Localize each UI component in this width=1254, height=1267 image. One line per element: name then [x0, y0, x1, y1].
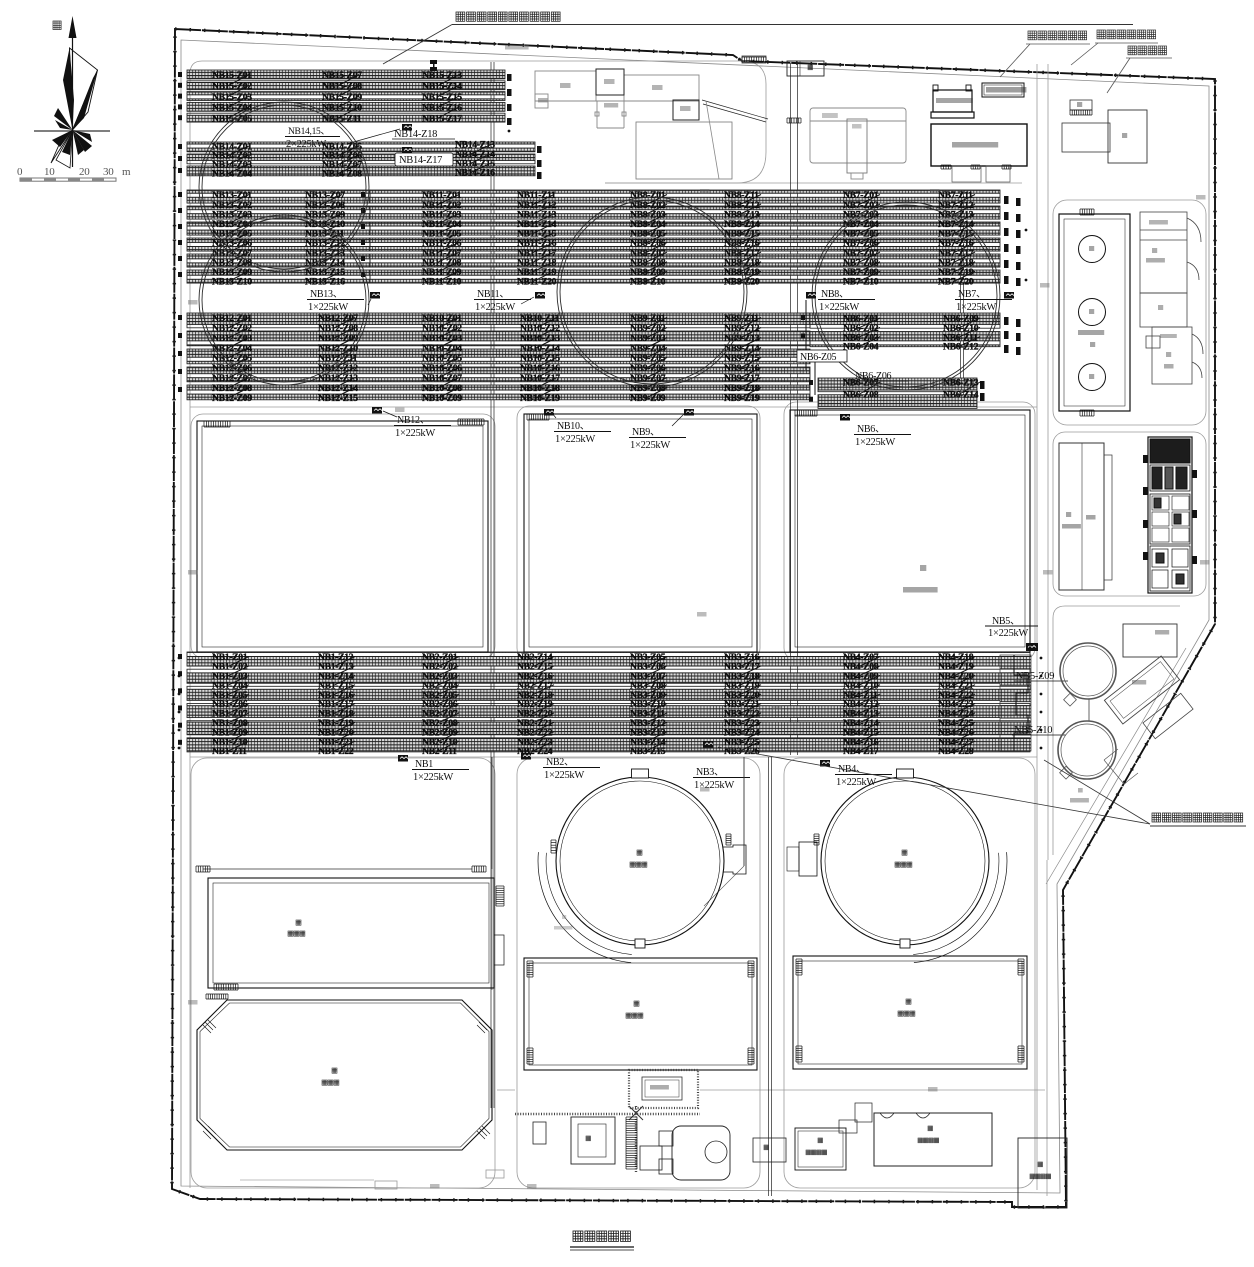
svg-text:1×225kW: 1×225kW: [475, 302, 515, 313]
svg-text:NB15-Z11: NB15-Z11: [322, 113, 362, 124]
svg-text:NB6、: NB6、: [857, 424, 885, 435]
svg-text:NB11-Z20: NB11-Z20: [517, 277, 557, 288]
svg-text:NB8、: NB8、: [821, 289, 849, 300]
svg-text:NB14-Z08: NB14-Z08: [322, 169, 362, 180]
svg-text:1×225kW: 1×225kW: [855, 437, 895, 448]
svg-text:NB6-Z05: NB6-Z05: [800, 352, 837, 363]
svg-text:1×225kW: 1×225kW: [555, 434, 595, 445]
svg-text:1×225kW: 1×225kW: [630, 440, 670, 451]
svg-text:NB1-Z11: NB1-Z11: [212, 746, 247, 757]
svg-text:NB9-Z19: NB9-Z19: [724, 393, 760, 404]
svg-text:NB5-Z10: NB5-Z10: [1014, 725, 1052, 736]
svg-text:NB11、: NB11、: [477, 289, 509, 300]
svg-text:NB12-Z15: NB12-Z15: [318, 393, 358, 404]
svg-text:m: m: [122, 166, 131, 178]
svg-text:NB6-Z04: NB6-Z04: [843, 342, 879, 353]
svg-text:NB7-Z10: NB7-Z10: [843, 277, 879, 288]
svg-text:NB9、: NB9、: [632, 427, 660, 438]
svg-text:NB14,15、: NB14,15、: [288, 127, 330, 137]
svg-text:NB12-Z09: NB12-Z09: [212, 393, 252, 404]
svg-text:NB2、: NB2、: [546, 757, 574, 768]
svg-text:NB6-Z08: NB6-Z08: [843, 390, 879, 401]
svg-text:10: 10: [44, 166, 55, 178]
svg-text:NB3-Z26: NB3-Z26: [724, 746, 760, 757]
svg-text:NB9-Z09: NB9-Z09: [630, 393, 666, 404]
svg-text:0: 0: [17, 166, 23, 178]
svg-text:NB3、: NB3、: [696, 767, 724, 778]
svg-text:NB14-Z18: NB14-Z18: [394, 129, 437, 140]
svg-text:NB14-Z17: NB14-Z17: [399, 155, 442, 166]
svg-text:NB10、: NB10、: [557, 421, 589, 432]
svg-text:NB13-Z16: NB13-Z16: [305, 277, 345, 288]
svg-text:NB1: NB1: [415, 759, 433, 770]
svg-text:NB7-Z20: NB7-Z20: [938, 277, 974, 288]
svg-text:NB15-Z05: NB15-Z05: [212, 113, 252, 124]
svg-text:NB6-Z14: NB6-Z14: [943, 390, 979, 401]
svg-text:NB14-Z16: NB14-Z16: [455, 168, 495, 179]
svg-text:NB5-Z09: NB5-Z09: [1016, 671, 1054, 682]
svg-text:1×225kW: 1×225kW: [956, 302, 996, 313]
svg-text:1×225kW: 1×225kW: [413, 772, 453, 783]
svg-text:1×225kW: 1×225kW: [836, 777, 876, 788]
svg-text:30: 30: [103, 166, 114, 178]
svg-text:NB15-Z17: NB15-Z17: [422, 113, 462, 124]
svg-text:20: 20: [79, 166, 90, 178]
svg-text:NB4-Z17: NB4-Z17: [843, 746, 879, 757]
svg-text:NB11-Z10: NB11-Z10: [422, 277, 462, 288]
svg-text:NB8-Z10: NB8-Z10: [630, 277, 666, 288]
svg-text:NB5、: NB5、: [992, 616, 1020, 627]
svg-text:NB7、: NB7、: [958, 289, 986, 300]
svg-text:NB13-Z10: NB13-Z10: [212, 277, 252, 288]
svg-text:NB6-Z06: NB6-Z06: [855, 371, 892, 382]
svg-text:NB10-Z09: NB10-Z09: [422, 393, 462, 404]
svg-text:NB2-Z11: NB2-Z11: [422, 746, 457, 757]
svg-text:NB4-Z28: NB4-Z28: [938, 746, 974, 757]
svg-text:NB6-Z12: NB6-Z12: [943, 342, 979, 353]
svg-text:NB3-Z15: NB3-Z15: [630, 746, 666, 757]
svg-text:1×225kW: 1×225kW: [395, 428, 435, 439]
svg-text:NB10-Z19: NB10-Z19: [520, 393, 560, 404]
svg-text:1×225kW: 1×225kW: [308, 302, 348, 313]
svg-text:1×225kW: 1×225kW: [819, 302, 859, 313]
svg-text:NB14-Z04: NB14-Z04: [212, 169, 252, 180]
svg-text:2×225kW: 2×225kW: [286, 139, 326, 150]
svg-text:NB13、: NB13、: [310, 289, 342, 300]
svg-text:1×225kW: 1×225kW: [988, 628, 1028, 639]
svg-text:NB8-Z20: NB8-Z20: [724, 277, 760, 288]
svg-text:NB1-Z22: NB1-Z22: [318, 746, 354, 757]
svg-text:1×225kW: 1×225kW: [544, 770, 584, 781]
svg-text:NB6-Z13: NB6-Z13: [943, 378, 979, 389]
